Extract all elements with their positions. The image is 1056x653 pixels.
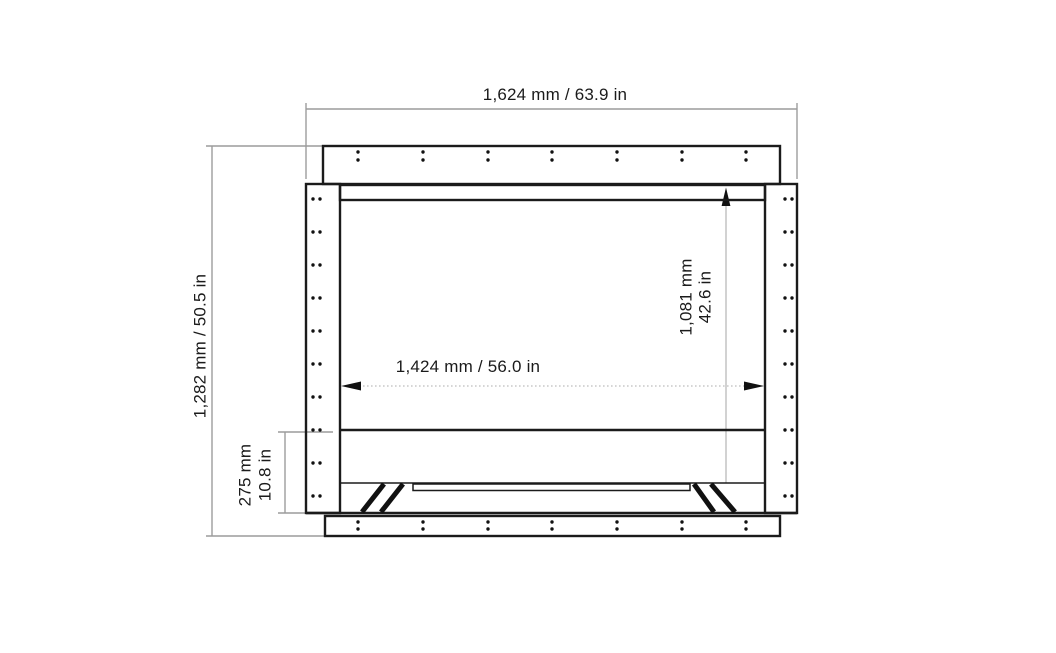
fastener-dot bbox=[783, 362, 786, 365]
fastener-dot bbox=[421, 520, 424, 523]
top-frame-rail bbox=[340, 185, 765, 200]
fastener-dot bbox=[744, 158, 747, 161]
fastener-dot bbox=[680, 520, 683, 523]
fastener-dot bbox=[318, 428, 321, 431]
fastener-dot bbox=[783, 461, 786, 464]
fastener-dot bbox=[783, 395, 786, 398]
fastener-dot bbox=[783, 329, 786, 332]
fastener-dot bbox=[421, 150, 424, 153]
fastener-dot bbox=[790, 197, 793, 200]
right-diagonal-brace-1 bbox=[694, 484, 714, 512]
left-batten-fasteners bbox=[311, 197, 321, 497]
fastener-dot bbox=[311, 296, 314, 299]
dimension-labels: 1,624 mm / 63.9 in 1,282 mm / 50.5 in 27… bbox=[191, 85, 715, 506]
left-diagonal-brace-2 bbox=[381, 484, 403, 512]
fastener-dot bbox=[311, 395, 314, 398]
interior-width-arrow-right-icon bbox=[744, 382, 764, 391]
left-side-batten bbox=[306, 184, 340, 513]
fastener-dot bbox=[356, 150, 359, 153]
right-batten-fasteners bbox=[783, 197, 793, 497]
fastener-dot bbox=[311, 461, 314, 464]
fastener-dot bbox=[783, 230, 786, 233]
fastener-dot bbox=[790, 230, 793, 233]
fastener-dot bbox=[311, 428, 314, 431]
fastener-dot bbox=[318, 197, 321, 200]
overall-height-label: 1,282 mm / 50.5 in bbox=[191, 274, 210, 418]
fastener-dot bbox=[615, 527, 618, 530]
fastener-dot bbox=[680, 158, 683, 161]
left-diagonal-brace-1 bbox=[362, 484, 384, 512]
fastener-dot bbox=[790, 428, 793, 431]
fastener-dot bbox=[744, 527, 747, 530]
crate-dimension-drawing: 1,624 mm / 63.9 in 1,282 mm / 50.5 in 27… bbox=[0, 0, 1056, 653]
fastener-dot bbox=[311, 197, 314, 200]
fastener-dot bbox=[790, 263, 793, 266]
top-board-fasteners bbox=[356, 150, 747, 161]
left-diagonal-braces bbox=[362, 484, 403, 512]
fastener-dot bbox=[311, 362, 314, 365]
base-height-label-mm: 275 mm bbox=[236, 444, 255, 507]
fastener-dot bbox=[318, 329, 321, 332]
fastener-dot bbox=[615, 158, 618, 161]
fastener-dot bbox=[318, 263, 321, 266]
fastener-dot bbox=[680, 527, 683, 530]
overall-width-label: 1,624 mm / 63.9 in bbox=[483, 85, 627, 104]
fastener-dot bbox=[615, 520, 618, 523]
fastener-dot bbox=[318, 230, 321, 233]
fastener-dot bbox=[311, 263, 314, 266]
fastener-dot bbox=[744, 520, 747, 523]
fastener-dot bbox=[311, 494, 314, 497]
interior-height-label-mm: 1,081 mm bbox=[677, 258, 696, 335]
fastener-dot bbox=[486, 520, 489, 523]
interior-height-label-in: 42.6 in bbox=[696, 271, 715, 323]
fastener-dot bbox=[486, 150, 489, 153]
fastener-dot bbox=[783, 428, 786, 431]
fastener-dot bbox=[790, 494, 793, 497]
fastener-dot bbox=[550, 150, 553, 153]
interior-width-label: 1,424 mm / 56.0 in bbox=[396, 357, 540, 376]
fork-slot bbox=[413, 484, 690, 491]
fastener-dot bbox=[790, 296, 793, 299]
interior-width-arrow-left-icon bbox=[341, 382, 361, 391]
fastener-dot bbox=[421, 158, 424, 161]
fastener-dot bbox=[550, 520, 553, 523]
fastener-dot bbox=[790, 362, 793, 365]
right-diagonal-braces bbox=[694, 484, 735, 512]
fastener-dot bbox=[790, 461, 793, 464]
right-diagonal-brace-2 bbox=[711, 484, 735, 512]
fastener-dot bbox=[680, 150, 683, 153]
fastener-dot bbox=[318, 494, 321, 497]
fastener-dot bbox=[311, 230, 314, 233]
fastener-dot bbox=[421, 527, 424, 530]
fastener-dot bbox=[311, 329, 314, 332]
bottom-skid-fasteners bbox=[356, 520, 747, 530]
fastener-dot bbox=[356, 158, 359, 161]
fastener-dot bbox=[550, 158, 553, 161]
fastener-dot bbox=[783, 494, 786, 497]
fastener-dot bbox=[356, 527, 359, 530]
fastener-dot bbox=[783, 296, 786, 299]
fastener-dot bbox=[318, 395, 321, 398]
fastener-dot bbox=[790, 329, 793, 332]
technical-drawing-canvas: 1,624 mm / 63.9 in 1,282 mm / 50.5 in 27… bbox=[0, 0, 1056, 653]
fastener-dot bbox=[318, 461, 321, 464]
fastener-dot bbox=[486, 527, 489, 530]
base-height-label-in: 10.8 in bbox=[256, 449, 275, 501]
fastener-dot bbox=[783, 263, 786, 266]
bottom-skid-board bbox=[325, 516, 780, 536]
fastener-dot bbox=[318, 362, 321, 365]
fastener-dot bbox=[318, 296, 321, 299]
fastener-dot bbox=[615, 150, 618, 153]
fastener-dot bbox=[486, 158, 489, 161]
fastener-dot bbox=[783, 197, 786, 200]
interior-height-arrow-up-icon bbox=[722, 188, 731, 207]
fastener-dot bbox=[744, 150, 747, 153]
fastener-dot bbox=[550, 527, 553, 530]
fastener-dot bbox=[356, 520, 359, 523]
fastener-dot bbox=[790, 395, 793, 398]
